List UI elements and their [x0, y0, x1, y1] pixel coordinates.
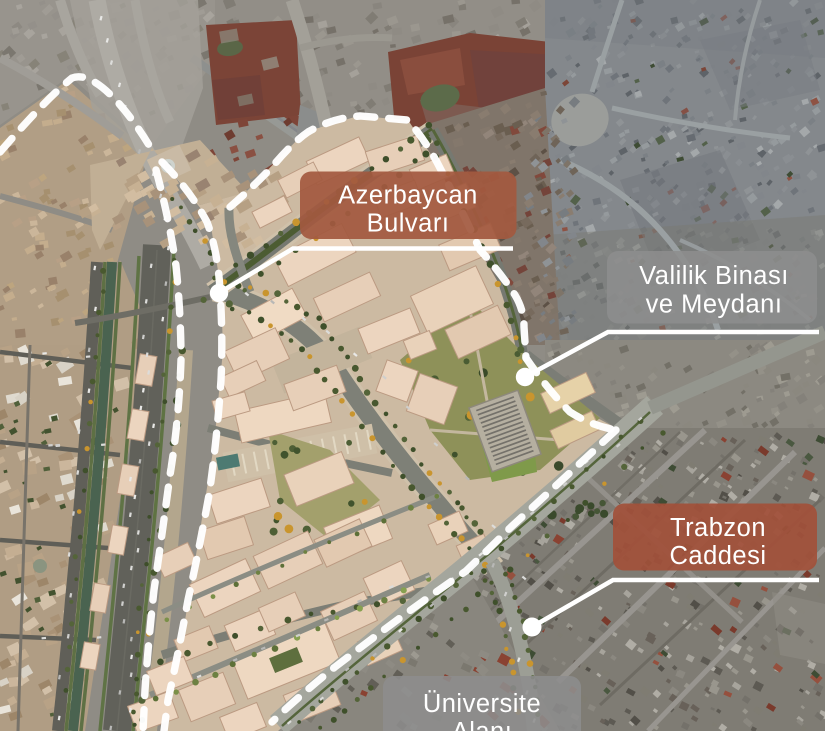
- svg-text:Caddesi: Caddesi: [669, 542, 766, 570]
- svg-text:Trabzon: Trabzon: [670, 514, 766, 542]
- svg-text:Alanı: Alanı: [452, 718, 513, 731]
- svg-text:ve Meydanı: ve Meydanı: [646, 291, 783, 319]
- svg-text:Üniversite: Üniversite: [423, 690, 541, 718]
- svg-text:Valilik Binası: Valilik Binası: [639, 262, 789, 290]
- svg-text:Bulvarı: Bulvarı: [367, 210, 450, 238]
- svg-text:Azerbaycan: Azerbaycan: [338, 182, 478, 210]
